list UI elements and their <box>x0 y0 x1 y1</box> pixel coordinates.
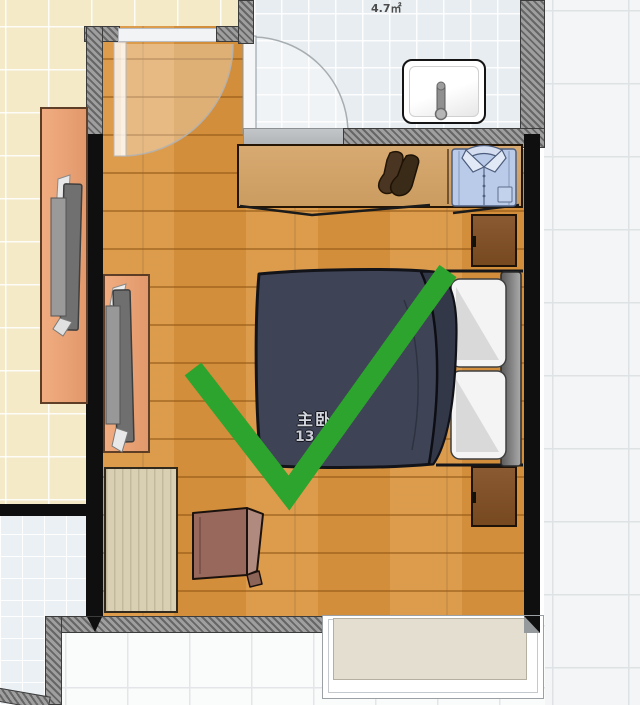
floor-tile-right-room <box>544 0 640 705</box>
wardrobe-divider <box>447 149 449 204</box>
nightstand-handle <box>472 492 476 503</box>
wall-corner-column <box>86 26 103 136</box>
desk <box>104 467 178 613</box>
window-sill <box>333 618 527 680</box>
tv-cabinet-bedroom <box>103 274 150 453</box>
bedroom-door-threshold <box>118 28 218 42</box>
nightstand-handle <box>472 236 476 247</box>
nightstand-bottom <box>471 466 517 527</box>
wall-bedroom-right <box>524 134 540 619</box>
bay-window <box>322 615 544 699</box>
wall-bedroom-left <box>86 134 103 619</box>
tv-cabinet-left <box>40 107 88 404</box>
wash-basin <box>402 59 486 124</box>
bedroom-name-label: 主卧 <box>297 406 333 430</box>
bedroom-area-label: 13.6 <box>295 429 330 445</box>
floor-tile-bathroom <box>250 0 545 149</box>
wall-bottom-horizontal <box>45 616 345 633</box>
wall-bathroom-left <box>238 0 254 44</box>
wardrobe <box>237 144 523 208</box>
wall-left-rooms-divider <box>0 504 90 516</box>
floor-tile-bottom-left-room <box>0 512 90 618</box>
bathroom-area-label: 4.7㎡ <box>371 0 402 16</box>
basin <box>409 66 479 117</box>
wall-bottom-vertical <box>45 616 62 705</box>
floor-plan: 4.7㎡ 主卧 13.6 <box>0 0 640 705</box>
wall-bathroom-right <box>520 0 545 146</box>
nightstand-top <box>471 214 517 267</box>
